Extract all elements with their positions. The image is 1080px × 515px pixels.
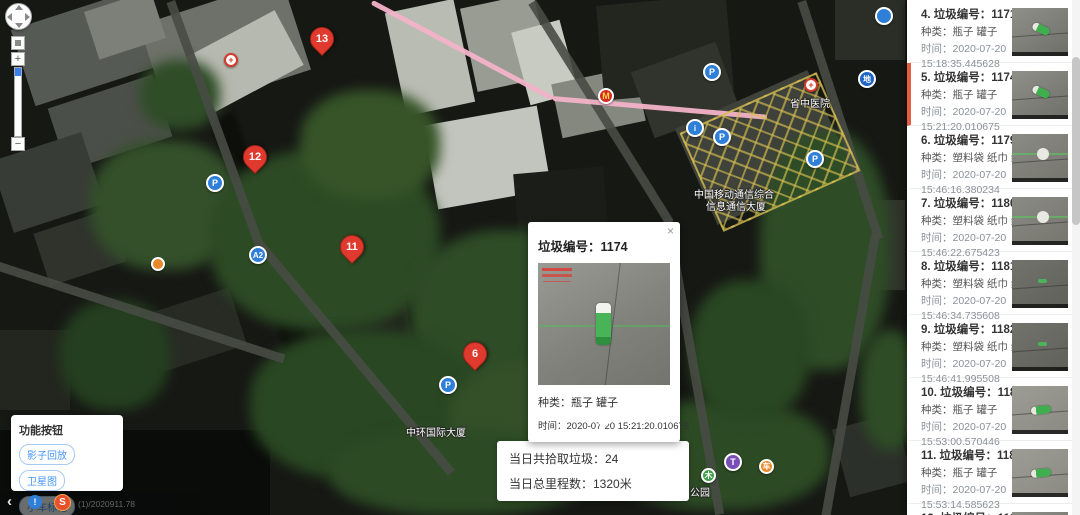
item-date: 时间：2020-07-20 <box>921 419 1012 434</box>
map-marker-木[interactable]: 木 <box>701 468 716 483</box>
zoom-slider-handle[interactable] <box>15 68 21 76</box>
item-title: 4. 垃圾编号：1171 <box>921 6 1012 22</box>
marker-label: 车 <box>763 461 771 472</box>
recorder-badge-icon: S <box>54 494 71 511</box>
function-panel: 功能按钮 影子回放卫星图小车标记标记列表 <box>11 415 123 491</box>
item-thumbnail[interactable] <box>1012 197 1068 245</box>
map-marker-+[interactable]: + <box>224 53 238 67</box>
marker-label: 木 <box>705 470 713 481</box>
marker-label: P <box>445 380 451 390</box>
marker-label: P <box>812 154 818 164</box>
reset-view-icon <box>15 40 21 46</box>
item-text: 11. 垃圾编号：1184 种类：瓶子 罐子 时间：2020-07-20 15:… <box>921 447 1012 503</box>
item-title: 9. 垃圾编号：1182 <box>921 321 1012 337</box>
daily-stats-box: 当日共拾取垃圾：24 当日总里程数：1320米 <box>497 441 689 501</box>
map-poi-label: 信息通信大厦 <box>706 198 766 213</box>
item-thumbnail[interactable] <box>1012 71 1068 119</box>
photo-watermark <box>542 268 572 271</box>
item-text: 10. 垃圾编号：1183 种类：瓶子 罐子 时间：2020-07-20 15:… <box>921 384 1012 440</box>
map-marker-P[interactable]: P <box>713 128 731 146</box>
list-item[interactable]: 11. 垃圾编号：1184 种类：瓶子 罐子 时间：2020-07-20 15:… <box>907 441 1072 504</box>
map-marker-P[interactable]: P <box>806 150 824 168</box>
list-item[interactable]: 10. 垃圾编号：1183 种类：瓶子 罐子 时间：2020-07-20 15:… <box>907 378 1072 441</box>
fn-button-0[interactable]: 影子回放 <box>19 444 75 465</box>
stat-total-distance: 当日总里程数：1320米 <box>509 475 677 492</box>
pan-right-icon[interactable] <box>25 13 30 21</box>
map-marker-P[interactable]: P <box>703 63 721 81</box>
item-text: 5. 垃圾编号：1174 种类：瓶子 罐子 时间：2020-07-20 15:2… <box>921 69 1012 125</box>
item-thumbnail[interactable] <box>1012 323 1068 371</box>
marker-label: 11 <box>341 236 363 258</box>
marker-label: + <box>808 80 813 90</box>
map-marker-+[interactable]: + <box>804 78 818 92</box>
item-date: 时间：2020-07-20 <box>921 293 1012 308</box>
map-canvas[interactable]: 13121165PPPPP地M++车T木A2i 中国移动通信综合信息通信大厦省中… <box>0 0 907 515</box>
list-item[interactable]: 5. 垃圾编号：1174 种类：瓶子 罐子 时间：2020-07-20 15:2… <box>907 63 1072 126</box>
item-type: 种类：塑料袋 纸巾 纸 <box>921 276 1012 291</box>
item-thumbnail[interactable] <box>1012 8 1068 56</box>
marker-label: 6 <box>464 343 486 365</box>
scrollbar-track[interactable] <box>1072 0 1080 515</box>
marker-label: P <box>212 178 218 188</box>
item-text: 4. 垃圾编号：1171 种类：瓶子 罐子 时间：2020-07-20 15:1… <box>921 6 1012 62</box>
item-thumbnail[interactable] <box>1012 260 1068 308</box>
pan-down-icon[interactable] <box>15 23 23 28</box>
map-marker-M[interactable]: M <box>598 88 614 104</box>
item-type: 种类：瓶子 罐子 <box>921 402 1012 417</box>
item-date: 时间：2020-07-20 <box>921 356 1012 371</box>
garbage-photo[interactable] <box>538 263 670 385</box>
pan-left-icon[interactable] <box>7 13 12 21</box>
item-type: 种类：塑料袋 纸巾 纸 <box>921 150 1012 165</box>
item-date: 时间：2020-07-20 <box>921 167 1012 182</box>
item-thumbnail[interactable] <box>1012 449 1068 497</box>
map-marker-P[interactable]: P <box>439 376 457 394</box>
pan-up-icon[interactable] <box>15 5 23 10</box>
stat-picked-count: 当日共拾取垃圾：24 <box>509 450 677 467</box>
item-type: 种类：瓶子 罐子 <box>921 87 1012 102</box>
item-thumbnail[interactable] <box>1012 134 1068 182</box>
map-poi-label: 中环国际大厦 <box>406 424 466 439</box>
item-title: 5. 垃圾编号：1174 <box>921 69 1012 85</box>
function-panel-title: 功能按钮 <box>19 422 115 438</box>
item-thumbnail[interactable] <box>1012 386 1068 434</box>
item-text: 6. 垃圾编号：1179 种类：塑料袋 纸巾 纸 时间：2020-07-20 1… <box>921 132 1012 188</box>
marker-label: 12 <box>244 146 266 168</box>
map-marker-i[interactable]: i <box>686 119 704 137</box>
garbage-list-sidebar[interactable]: 4. 垃圾编号：1171 种类：瓶子 罐子 时间：2020-07-20 15:1… <box>907 0 1080 515</box>
status-note: (1)/2020911.78 <box>78 499 135 509</box>
marker-label: 13 <box>311 28 333 50</box>
close-icon[interactable]: × <box>667 225 674 237</box>
pan-compass[interactable] <box>5 3 32 30</box>
item-type: 种类：瓶子 罐子 <box>921 24 1012 39</box>
scrollbar-thumb[interactable] <box>1072 57 1080 225</box>
item-title: 8. 垃圾编号：1181 <box>921 258 1012 274</box>
marker-label: T <box>730 457 736 467</box>
item-type: 种类：塑料袋 纸巾 纸 <box>921 213 1012 228</box>
map-marker-A2[interactable]: A2 <box>249 246 267 264</box>
marker-label: i <box>694 124 696 133</box>
map-marker-T[interactable]: T <box>724 453 742 471</box>
map-marker-P[interactable]: P <box>206 174 224 192</box>
marker-label: A2 <box>253 251 263 260</box>
item-date: 时间：2020-07-20 <box>921 41 1012 56</box>
item-type: 种类：塑料袋 纸巾 纸 <box>921 339 1012 354</box>
zoom-in-button[interactable]: + <box>11 52 25 66</box>
item-text: 8. 垃圾编号：1181 种类：塑料袋 纸巾 纸 时间：2020-07-20 1… <box>921 258 1012 314</box>
item-text: 7. 垃圾编号：1180 种类：塑料袋 纸巾 纸 时间：2020-07-20 1… <box>921 195 1012 251</box>
map-poi-label: 省中医院 <box>790 95 830 110</box>
popup-tail <box>596 420 612 437</box>
item-title: 10. 垃圾编号：1183 <box>921 384 1012 400</box>
popup-type-line: 种类：瓶子 罐子 <box>538 394 670 410</box>
map-marker-车[interactable]: 车 <box>759 459 774 474</box>
marker-label: 地 <box>863 74 871 85</box>
popup-title: 垃圾编号：1174 <box>538 236 670 255</box>
item-date: 时间：2020-07-20 <box>921 230 1012 245</box>
item-text: 9. 垃圾编号：1182 种类：塑料袋 纸巾 纸 时间：2020-07-20 1… <box>921 321 1012 377</box>
reset-view-button[interactable] <box>11 36 25 50</box>
map-marker-地[interactable]: 地 <box>858 70 876 88</box>
item-title: 6. 垃圾编号：1179 <box>921 132 1012 148</box>
garbage-info-popup: × 垃圾编号：1174 种类：瓶子 罐子 时间：2020-07-20 15:21… <box>528 222 680 442</box>
back-chevron-icon[interactable]: ‹ <box>7 493 12 510</box>
item-type: 种类：瓶子 罐子 <box>921 465 1012 480</box>
marker-label: M <box>602 91 610 101</box>
map-poi-label: 公园 <box>690 484 710 499</box>
item-text: 12. 垃圾编号：1185 <box>921 510 1012 515</box>
app: 13121165PPPPP地M++车T木A2i 中国移动通信综合信息通信大厦省中… <box>0 0 1080 515</box>
zoom-out-button[interactable]: − <box>11 137 25 151</box>
bottle-in-photo <box>596 303 611 345</box>
map-marker-poi[interactable] <box>875 7 893 25</box>
map-nav-control: + − <box>5 3 32 30</box>
fn-button-1[interactable]: 卫星图 <box>19 470 65 491</box>
item-title: 12. 垃圾编号：1185 <box>921 510 1012 515</box>
item-date: 时间：2020-07-20 <box>921 482 1012 497</box>
list-item[interactable]: 6. 垃圾编号：1179 种类：塑料袋 纸巾 纸 时间：2020-07-20 1… <box>907 126 1072 189</box>
item-date: 时间：2020-07-20 <box>921 104 1012 119</box>
info-icon[interactable]: ! <box>28 495 42 509</box>
marker-label: + <box>228 55 233 65</box>
item-title: 11. 垃圾编号：1184 <box>921 447 1012 463</box>
list-item[interactable]: 4. 垃圾编号：1171 种类：瓶子 罐子 时间：2020-07-20 15:1… <box>907 0 1072 63</box>
zoom-slider[interactable] <box>14 67 22 137</box>
item-title: 7. 垃圾编号：1180 <box>921 195 1012 211</box>
status-overlay-bar: ‹ ! S (1)/2020911.78 <box>0 491 245 515</box>
list-item[interactable]: 7. 垃圾编号：1180 种类：塑料袋 纸巾 纸 时间：2020-07-20 1… <box>907 189 1072 252</box>
marker-label: P <box>709 67 715 77</box>
list-item[interactable]: 9. 垃圾编号：1182 种类：塑料袋 纸巾 纸 时间：2020-07-20 1… <box>907 315 1072 378</box>
garbage-list[interactable]: 4. 垃圾编号：1171 种类：瓶子 罐子 时间：2020-07-20 15:1… <box>907 0 1072 515</box>
marker-label: P <box>719 132 725 142</box>
map-marker-poiorange[interactable] <box>151 257 165 271</box>
list-item[interactable]: 8. 垃圾编号：1181 种类：塑料袋 纸巾 纸 时间：2020-07-20 1… <box>907 252 1072 315</box>
